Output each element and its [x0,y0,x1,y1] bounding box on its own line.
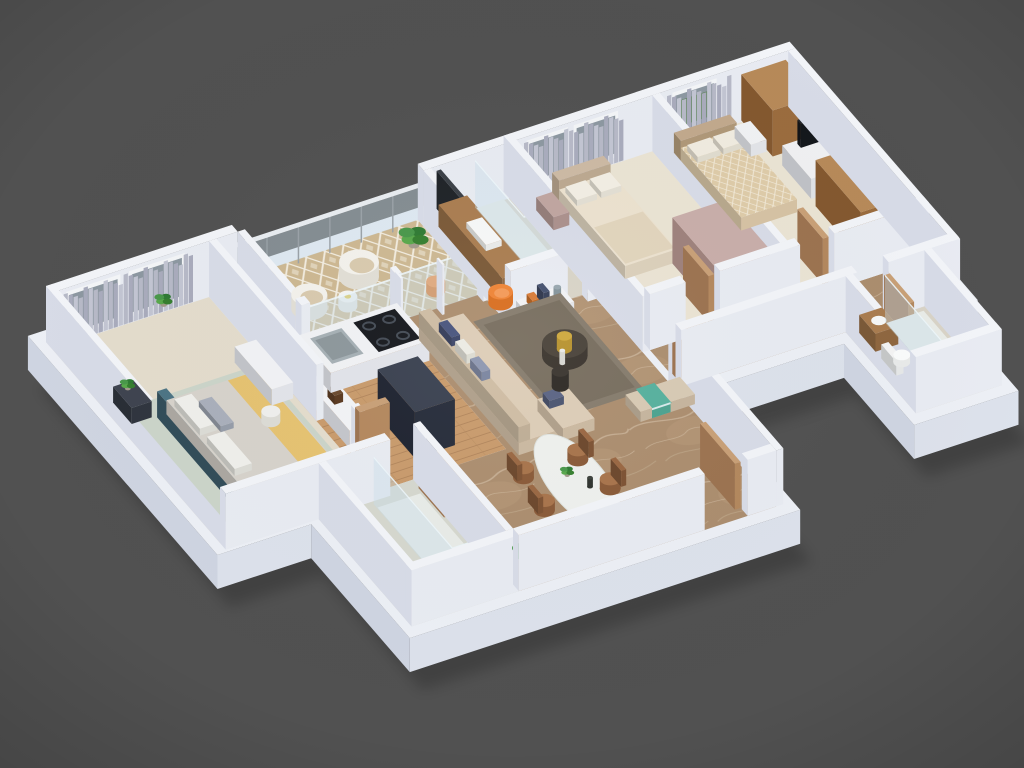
master-curtains-strip [109,281,113,329]
nightstand-plant-leaf [127,383,135,388]
nightstand-plant-leaf [120,379,128,384]
bedroom2-curtains-strip [619,119,623,161]
wall-front-b-south [748,451,777,516]
bedroom2-curtains-strip [614,118,618,163]
master-curtains-strip [129,275,133,323]
master-curtains-strip [144,267,148,318]
wall-living-east-b-south [776,448,783,506]
wall-master-front-west [220,487,226,550]
master-curtains-strip [149,268,153,317]
sideboard-vase-top [554,285,562,290]
dining-chair-4-back-south [589,440,594,458]
master-curtains-strip [124,273,128,324]
dining-chair-2-back-south [538,497,543,515]
master-curtains-strip [154,269,158,314]
windowsill-plant-leaf [154,294,164,300]
master-curtains-strip [159,271,163,313]
master-curtains-strip [119,284,123,326]
balcony-glass-railing-post [298,223,300,264]
entry-door-leaf-south [735,462,741,510]
master-curtains-strip [189,255,193,303]
balcony-glass-railing-post [329,213,330,253]
floorplan-render [0,0,1024,768]
balcony-plant-leaf [399,228,415,238]
master-curtains-strip [139,277,143,319]
master-stool-top [261,405,280,417]
gold-tray-table-top [557,331,572,341]
balcony-plant-leaf [412,235,428,245]
orange-chair-cushion [494,288,509,298]
master-curtains-strip [99,291,103,333]
slider-post-2-west [437,258,443,315]
bedroom2-curtains-strip [609,117,613,165]
coffee-cup-top [559,349,565,353]
windowsill-plant-leaf [163,299,173,305]
wall-corridor-south-a-west [676,324,682,387]
master-curtains-strip [174,263,178,308]
master-curtains-strip [134,276,138,321]
dining-chair-5-back-south [621,469,626,487]
slider-post-2-south [442,264,444,315]
balcony-glass-railing-post [361,202,363,243]
master-curtains-strip [94,289,98,334]
wall-front-a-west [513,528,519,591]
wall-bedrooms-front-a-west [644,287,650,350]
coffee-cup-side [559,350,565,363]
wall-back-right-west [418,164,424,227]
dining-table-plant-leaf [566,470,574,475]
wing-toilet-top [893,350,910,361]
master-curtains-strip [179,264,183,306]
wall-master-east-a-south [316,363,323,421]
master-curtains-strip [104,280,108,332]
wall-wing-south-west [910,351,916,414]
dining-table-plant-leaf [560,467,568,472]
balcony-glass-railing-post [392,192,393,233]
scene-svg [0,0,1024,768]
wall-front-b-west [742,453,748,516]
master-curtains-strip [184,254,188,305]
wall-ensuite-front-west [406,564,412,627]
master-curtains-strip [114,283,118,328]
egg-chair-2-cushion [350,258,375,274]
wing-sink [871,316,886,326]
side-table-top [552,366,569,377]
dining-chair-1-back-south [517,464,522,482]
dining-table-bottle-top [587,476,593,480]
desk-monitor-west [797,120,801,148]
